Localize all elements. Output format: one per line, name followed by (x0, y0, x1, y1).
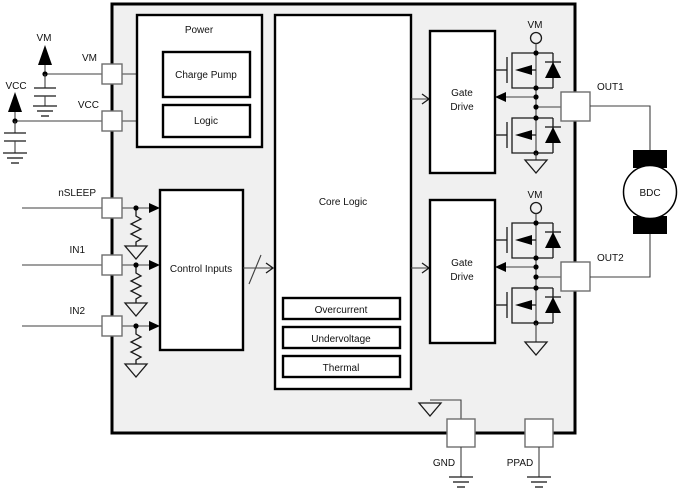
pin-out1 (561, 92, 590, 121)
vm-supply-label: VM (37, 33, 52, 44)
ground-icon (527, 477, 551, 487)
diagram-canvas: VM VCC (0, 0, 680, 492)
pin-vcc (102, 111, 122, 131)
pin-out2-label: OUT2 (597, 253, 624, 264)
gate-drive1-label-line1: Gate (451, 88, 473, 99)
vm-supply-arrow-icon (38, 45, 52, 74)
charge-pump-label: Charge Pump (175, 70, 237, 81)
ground-icon (449, 477, 473, 487)
ground-icon (33, 106, 57, 116)
core-logic-label: Core Logic (319, 197, 367, 208)
overcurrent-label: Overcurrent (315, 305, 368, 316)
pin-out1-label: OUT1 (597, 82, 624, 93)
vm-bulk-capacitor-icon (34, 88, 56, 96)
block-diagram: VM VCC (0, 0, 680, 492)
gate-drive2-block: Gate Drive (430, 200, 495, 343)
gate-drive1-block: Gate Drive (430, 31, 495, 173)
pin-out2 (561, 262, 590, 291)
gate-drive2-label-line1: Gate (451, 258, 473, 269)
power-block: Power Charge Pump Logic (137, 15, 262, 147)
pin-vm-label: VM (82, 53, 97, 64)
gate-drive2-label-line2: Drive (450, 272, 474, 283)
vcc-supply-label: VCC (5, 81, 26, 92)
control-inputs-block: Control Inputs (160, 190, 243, 350)
pin-vm (102, 64, 122, 84)
vcc-bypass-capacitor-icon (4, 133, 26, 141)
out1-motor-wire (590, 106, 650, 150)
pin-ppad (525, 419, 553, 447)
vm-rail1-label: VM (528, 20, 543, 31)
pin-ppad-label: PPAD (507, 458, 534, 469)
undervoltage-label: Undervoltage (311, 334, 371, 345)
vm-rail2-label: VM (528, 190, 543, 201)
gate-drive1-label-line2: Drive (450, 102, 474, 113)
vcc-supply-arrow-icon (8, 92, 22, 121)
motor-label: BDC (639, 188, 660, 199)
vcc-supply-circuit: VCC (3, 81, 102, 163)
pin-gnd-label: GND (433, 458, 455, 469)
pin-nsleep (102, 198, 122, 218)
pin-vcc-label: VCC (78, 100, 99, 111)
control-inputs-label: Control Inputs (170, 264, 232, 275)
pin-in2 (102, 316, 122, 336)
pin-in2-label: IN2 (69, 306, 85, 317)
bdc-motor: BDC (624, 150, 677, 234)
core-logic-block: Core Logic Overcurrent Undervoltage Ther… (275, 15, 411, 389)
thermal-label: Thermal (323, 363, 360, 374)
logic-label: Logic (194, 116, 218, 127)
power-block-label: Power (185, 25, 214, 36)
pin-nsleep-label: nSLEEP (58, 188, 96, 199)
pin-in1-label: IN1 (69, 245, 85, 256)
pin-in1 (102, 255, 122, 275)
pin-gnd (447, 419, 475, 447)
ground-icon (3, 153, 27, 163)
